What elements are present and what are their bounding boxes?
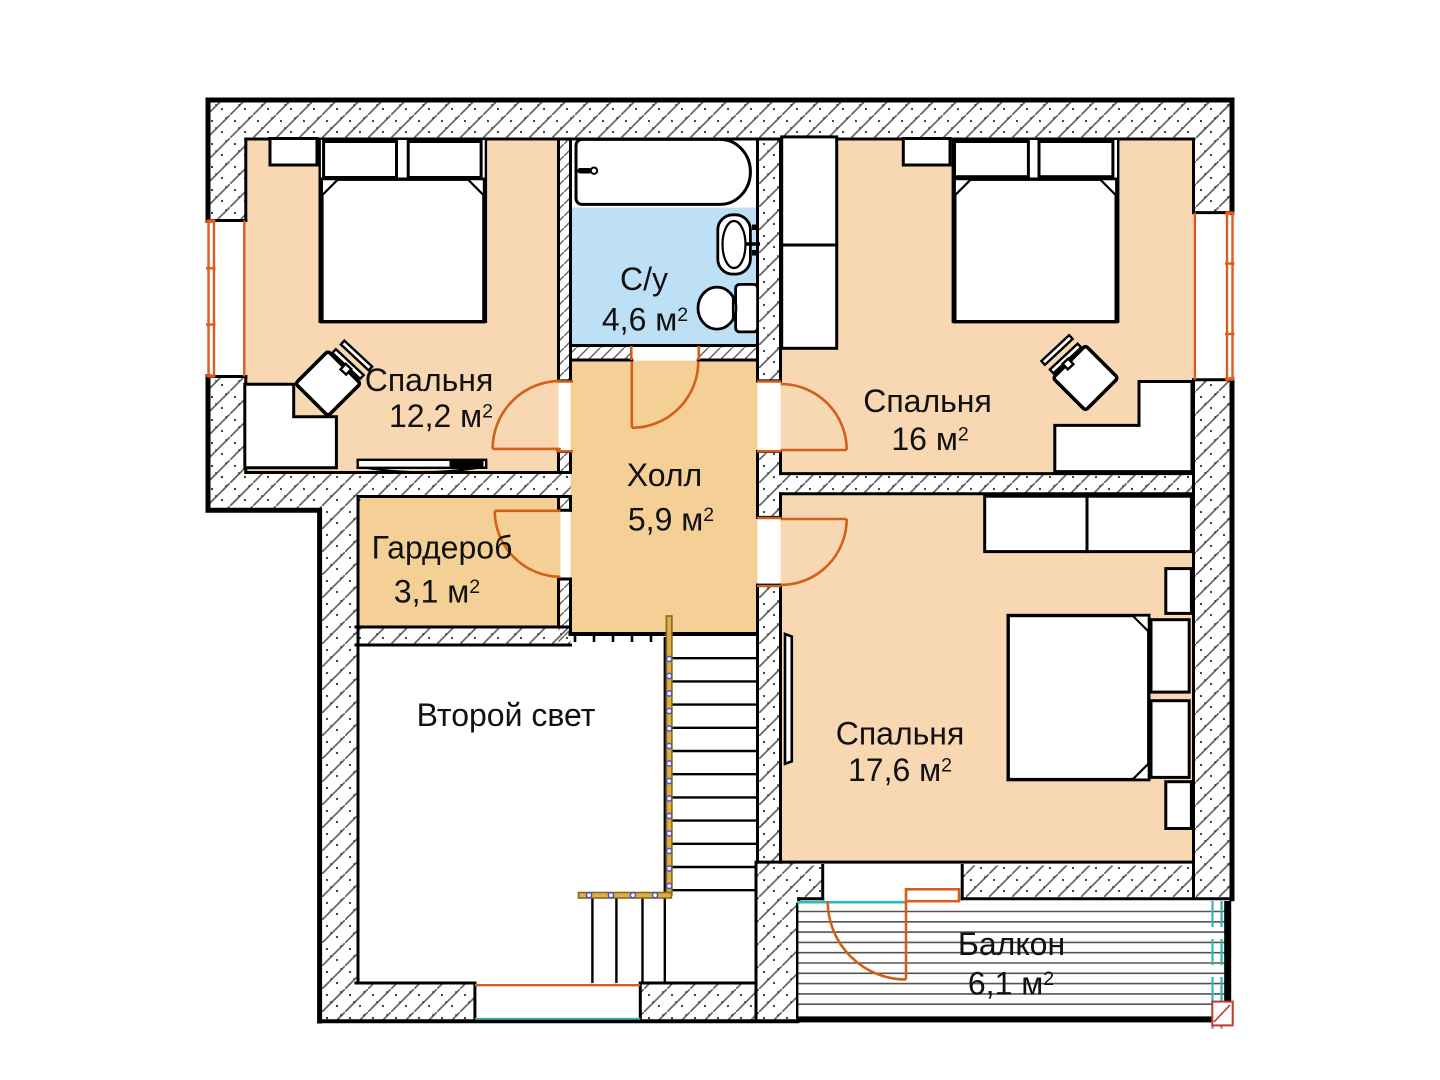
svg-text:Спальня: Спальня [863,383,992,419]
svg-text:Второй свет: Второй свет [417,697,596,733]
svg-text:3,1 м2: 3,1 м2 [394,574,480,610]
svg-text:Гардероб: Гардероб [372,530,513,566]
svg-text:4,6 м2: 4,6 м2 [602,302,688,338]
svg-text:16 м2: 16 м2 [891,421,968,457]
svg-text:Спальня: Спальня [836,716,965,752]
svg-text:С/у: С/у [620,261,668,297]
svg-text:Балкон: Балкон [958,926,1065,962]
svg-text:Холл: Холл [627,457,702,493]
svg-text:17,6 м2: 17,6 м2 [848,752,952,788]
svg-text:6,1 м2: 6,1 м2 [968,966,1054,1002]
svg-text:12,2 м2: 12,2 м2 [389,398,493,434]
svg-text:Спальня: Спальня [365,362,494,398]
svg-text:5,9 м2: 5,9 м2 [628,502,714,538]
